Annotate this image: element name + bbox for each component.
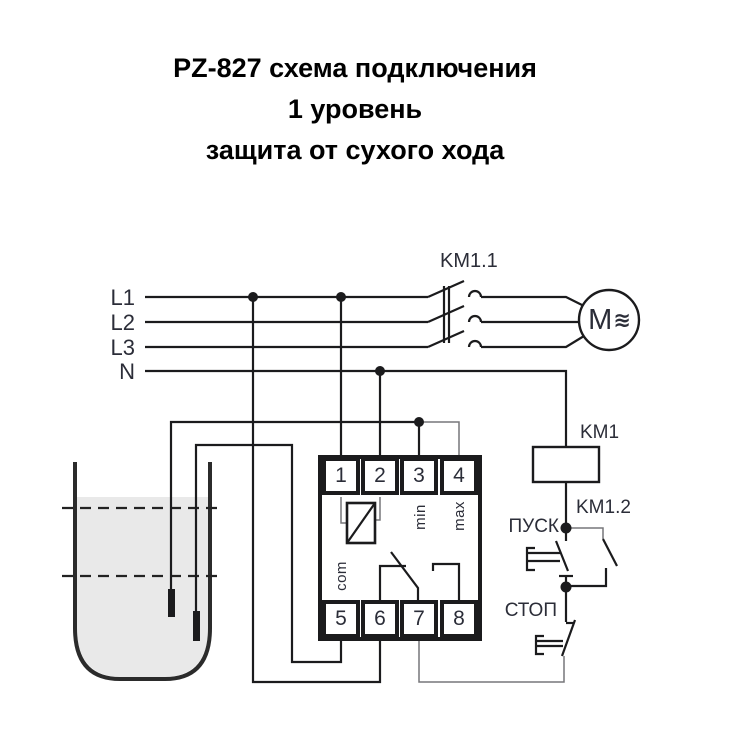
km12-label: KM1.2 [576, 497, 631, 519]
line-label-n: N [90, 359, 135, 383]
title-line-1: PZ-827 схема подключения [30, 48, 680, 89]
terminal-number: 1 [335, 464, 347, 488]
title-line-3: защита от сухого хода [30, 130, 680, 171]
terminal-number: 8 [453, 607, 465, 631]
common-electrode [193, 611, 200, 641]
motor-label: M ≋ [581, 292, 638, 349]
motor-wave-icon: ≋ [613, 308, 631, 333]
relay-terminal-4: 4 [440, 457, 478, 495]
line-label-l3: L3 [90, 335, 135, 359]
terminal-number: 7 [413, 607, 425, 631]
level-electrode [168, 589, 175, 617]
relay-terminal-3: 3 [400, 457, 438, 495]
min-label: min [412, 495, 428, 539]
stop-button-symbol [536, 620, 575, 656]
diagram-title: PZ-827 схема подключения 1 уровень защит… [30, 48, 680, 171]
relay-terminal-6: 6 [361, 600, 399, 638]
motor-letter: M [588, 304, 612, 337]
com-label: com [333, 554, 349, 598]
stop-button-label: СТОП [493, 600, 557, 622]
relay-terminal-2: 2 [361, 457, 399, 495]
terminal-number: 6 [374, 607, 386, 631]
km1-coil-label: KM1 [580, 422, 619, 444]
relay-terminal-5: 5 [322, 600, 360, 638]
max-label: max [451, 494, 467, 538]
terminal-number: 5 [335, 607, 347, 631]
contactor-km11-contacts [428, 281, 584, 347]
terminal-number: 4 [453, 464, 465, 488]
km12-aux-contact-symbol [566, 528, 617, 586]
relay-terminal-8: 8 [440, 600, 478, 638]
wiring-diagram-page: PZ-827 схема подключения 1 уровень защит… [0, 0, 750, 750]
km1-coil-symbol [533, 447, 599, 482]
title-line-2: 1 уровень [30, 89, 680, 130]
terminal-number: 3 [413, 464, 425, 488]
line-label-l1: L1 [90, 285, 135, 309]
line-label-l2: L2 [90, 310, 135, 334]
terminal-number: 2 [374, 464, 386, 488]
power-lines [145, 297, 566, 447]
relay-terminal-1: 1 [322, 457, 360, 495]
start-button-label: ПУСК [493, 516, 559, 538]
relay-terminal-7: 7 [400, 600, 438, 638]
tank [62, 462, 223, 679]
km11-label: KM1.1 [440, 250, 498, 273]
